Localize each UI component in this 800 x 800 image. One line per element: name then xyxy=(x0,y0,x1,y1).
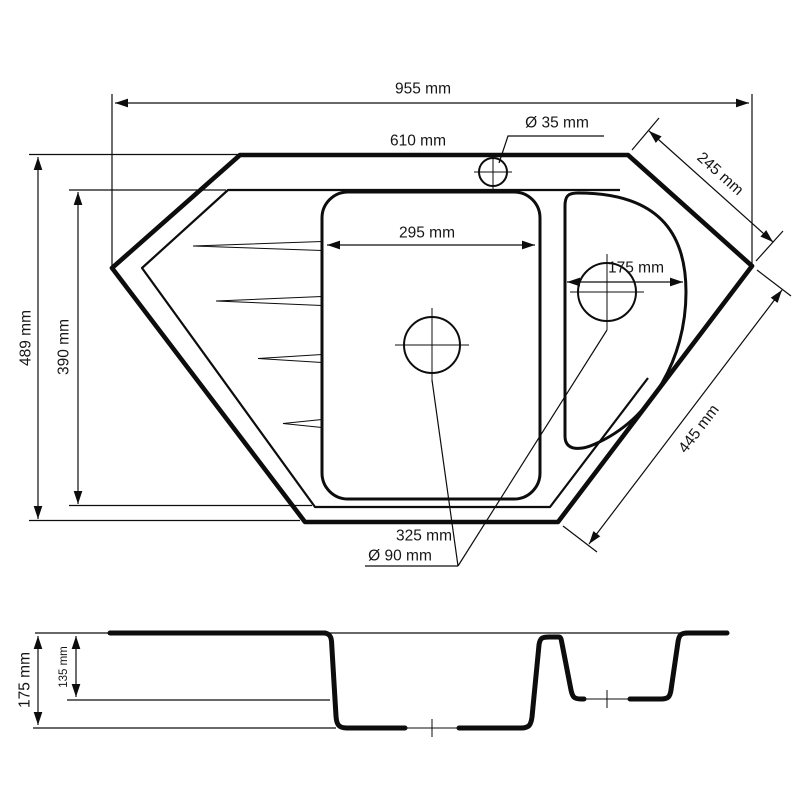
section-profile-divider xyxy=(459,637,584,728)
small-bowl-outline xyxy=(565,193,686,448)
faucet-hole xyxy=(474,153,512,191)
dim-label-top-edge: 610 mm xyxy=(390,133,446,150)
plan-view xyxy=(112,153,752,522)
dim-label-overall-width: 955 mm xyxy=(395,81,451,98)
drainboard-groove xyxy=(193,242,322,251)
sink-technical-drawing: 955 mm 610 mm Ø 35 mm 245 mm 489 mm 390 … xyxy=(0,0,800,800)
dim-label-main-bowl-depth: 175 mm xyxy=(17,652,34,708)
drainboard-groove xyxy=(216,297,322,306)
drainboard-groove xyxy=(258,355,322,363)
dim-label-bottom-edge: 325 mm xyxy=(396,528,452,545)
dim-label-faucet-hole: Ø 35 mm xyxy=(525,115,589,132)
extension-line xyxy=(563,526,597,552)
dim-label-drain-diameter: Ø 90 mm xyxy=(368,548,432,565)
dim-label-small-bowl-depth: 135 mm xyxy=(58,646,70,688)
extension-line xyxy=(632,118,659,150)
dim-label-lower-right-edge: 445 mm xyxy=(675,402,722,457)
dim-label-overall-depth: 489 mm xyxy=(18,310,35,366)
extension-line xyxy=(756,231,783,261)
dim-label-main-bowl-width: 295 mm xyxy=(399,225,455,242)
section-view: 175 mm 135 mm xyxy=(17,633,729,737)
main-drain xyxy=(395,308,469,382)
sink-inner-rim-outline xyxy=(142,190,648,507)
leader-line-faucet xyxy=(499,136,604,163)
dim-label-upper-right-edge: 245 mm xyxy=(693,149,746,199)
extension-line xyxy=(757,270,791,296)
section-profile-small-bowl-right xyxy=(630,633,727,699)
drainboard-groove xyxy=(283,420,322,428)
dim-label-rim-depth: 390 mm xyxy=(56,319,73,375)
drawing-page: 955 mm 610 mm Ø 35 mm 245 mm 489 mm 390 … xyxy=(0,0,800,800)
section-profile-main-bowl-left xyxy=(324,633,405,728)
dim-label-small-bowl-width: 175 mm xyxy=(608,260,664,277)
